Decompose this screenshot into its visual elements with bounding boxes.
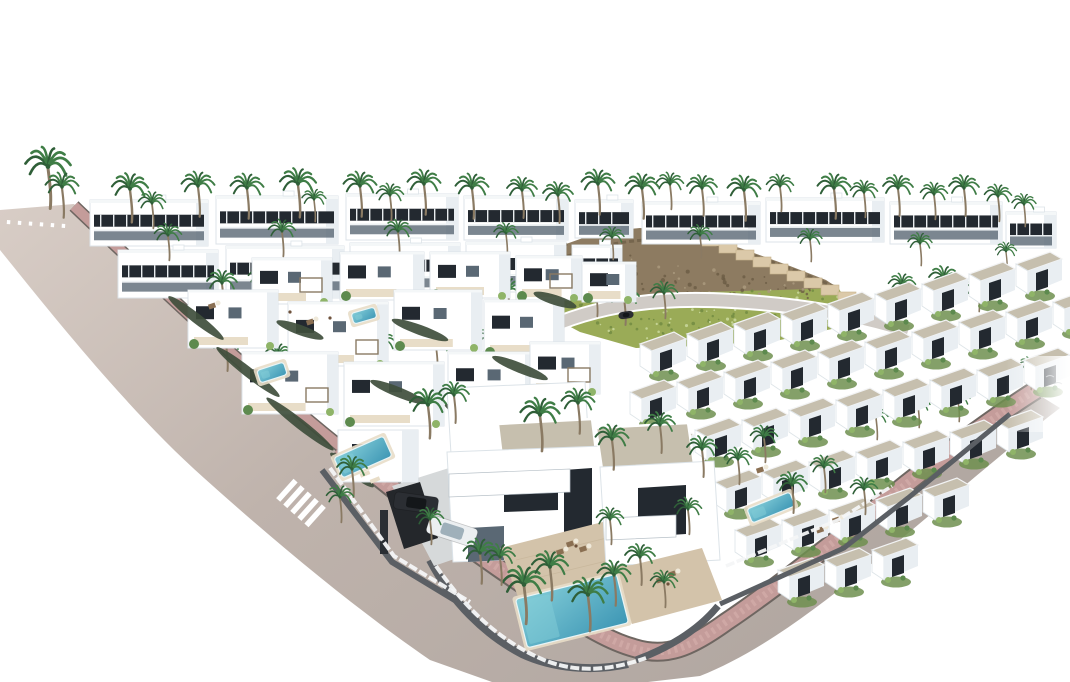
window [333, 321, 346, 332]
terrace [346, 289, 396, 297]
window-band [94, 215, 204, 227]
townhouse-unit [969, 262, 1015, 312]
garden-tree [715, 359, 720, 364]
wall-step [736, 250, 754, 260]
garden-tree [831, 379, 837, 385]
townhouse-unit [883, 378, 929, 428]
garden-tree [885, 577, 891, 583]
townhouse-unit [1016, 252, 1062, 302]
development-aerial-render [0, 0, 1070, 682]
garden-tree [1010, 449, 1016, 455]
garden-tree [243, 405, 253, 415]
garden-tree [896, 417, 902, 423]
villa-row-building [464, 191, 568, 240]
aerial-render-stage [0, 0, 1070, 682]
townhouse-unit [818, 340, 864, 390]
garden-tree [943, 407, 949, 413]
crosswalk-stripe [18, 221, 22, 225]
window-band [770, 228, 880, 237]
road-fade-right [1006, 356, 1070, 432]
window-band [770, 212, 880, 224]
wall-step [787, 271, 805, 281]
garden-tree [911, 415, 916, 420]
window [352, 380, 370, 393]
window [348, 265, 366, 278]
crosswalk-stripe [40, 222, 44, 226]
garden-tree [888, 321, 894, 327]
garden-tree [770, 445, 775, 450]
garden-tree [950, 309, 955, 314]
window [402, 307, 420, 320]
garden-tree [982, 301, 988, 307]
wall-step [804, 278, 822, 288]
garden-tree [935, 311, 941, 317]
garden-tree [889, 527, 895, 533]
garden-tree [345, 417, 355, 427]
window-band [94, 231, 204, 240]
curved-balcony [449, 469, 570, 497]
garden-tree [189, 339, 199, 349]
garden-tree [432, 420, 440, 428]
garden-tree [878, 369, 884, 375]
garden-tree [784, 389, 790, 395]
garden-tree [755, 447, 761, 453]
garden-tree [940, 357, 945, 362]
garden-tree [326, 408, 334, 416]
garden-tree [842, 537, 848, 543]
townhouse-unit [771, 350, 817, 400]
townhouse-unit [789, 398, 835, 448]
window [466, 266, 479, 277]
window-band [350, 209, 454, 221]
townhouse-unit [912, 320, 958, 370]
wall-step [770, 264, 788, 274]
window [488, 369, 501, 380]
garden-tree [1025, 447, 1030, 452]
garden-tree [963, 459, 969, 465]
garden-tree [668, 369, 673, 374]
detached-villa [582, 262, 636, 304]
window [538, 357, 556, 370]
parasol [764, 465, 769, 470]
garden-tree [849, 427, 855, 433]
parasol [676, 569, 681, 574]
townhouse-unit [865, 330, 911, 380]
garden-tree [795, 547, 801, 553]
garden-tree [997, 299, 1002, 304]
garden-tree [951, 515, 956, 520]
crosswalk-stripe [62, 224, 66, 228]
window [456, 368, 474, 381]
garden-tree [903, 319, 908, 324]
garden-tree [806, 595, 811, 600]
garden-tree [904, 525, 909, 530]
window [378, 266, 391, 277]
garden-tree [853, 585, 858, 590]
wall-step [753, 257, 771, 267]
garden-tree [752, 397, 757, 402]
garden-tree [395, 341, 405, 351]
window [229, 307, 242, 318]
garden-tree [1034, 337, 1039, 342]
townhouse-unit [724, 360, 770, 410]
garden-tree [990, 397, 996, 403]
window [590, 273, 608, 286]
garden-tree [762, 349, 767, 354]
parasol [216, 301, 221, 306]
window [606, 274, 619, 285]
window [260, 271, 278, 284]
balcony [606, 515, 676, 540]
garden-tree [856, 329, 861, 334]
garden-tree [936, 517, 942, 523]
window-band [894, 215, 998, 227]
garden-tree [700, 361, 706, 367]
garden-tree [588, 388, 596, 396]
garden-tree [624, 296, 632, 304]
window-band [220, 211, 334, 223]
terrace [350, 415, 410, 423]
window [434, 308, 447, 319]
person [574, 544, 577, 547]
window-band [1010, 236, 1052, 245]
parasol [564, 547, 569, 552]
garden-tree [837, 487, 842, 492]
garden-tree [884, 477, 889, 482]
villa-row-building [216, 191, 338, 244]
garden-tree [653, 371, 659, 377]
person [666, 582, 669, 585]
garden-tree [925, 359, 931, 365]
townhouse-unit [630, 380, 676, 430]
garden-tree [978, 457, 983, 462]
townhouse-unit [959, 310, 1005, 360]
garden-tree [747, 351, 753, 357]
garden-tree [900, 575, 905, 580]
garden-tree [809, 339, 814, 344]
garden-tree [893, 367, 898, 372]
garden-tree [1029, 291, 1035, 297]
garden-tree [737, 399, 743, 405]
window [288, 272, 301, 283]
townhouse-unit [836, 388, 882, 438]
garden-tree [802, 437, 808, 443]
window [520, 317, 533, 328]
window-band [894, 231, 998, 240]
crosswalk-stripe [29, 222, 33, 226]
person [288, 310, 291, 313]
garden-tree [916, 469, 922, 475]
garden-tree [794, 341, 800, 347]
garden-tree [838, 587, 844, 593]
garden-tree [690, 409, 696, 415]
garden-tree [931, 467, 936, 472]
garden-tree [470, 344, 478, 352]
townhouse-unit [1006, 300, 1052, 350]
garden-tree [987, 347, 992, 352]
window [546, 269, 559, 280]
garden-tree [705, 407, 710, 412]
parasol [574, 539, 579, 544]
garden-tree [266, 342, 274, 350]
garden-tree [791, 597, 797, 603]
window-band [646, 215, 756, 227]
garden-tree [958, 405, 963, 410]
crosswalk-stripe [7, 220, 11, 224]
garden-tree [799, 387, 804, 392]
townhouse-unit [922, 272, 968, 322]
garden-tree [498, 292, 506, 300]
townhouse-unit [1053, 290, 1070, 340]
garden-tree [846, 377, 851, 382]
garden-tree [570, 294, 578, 302]
window [562, 358, 575, 369]
garden-tree [763, 555, 768, 560]
garden-tree [817, 435, 822, 440]
crosswalk-stripe [51, 223, 55, 227]
window-band [579, 212, 629, 224]
garden-tree [810, 545, 815, 550]
garden-tree [864, 425, 869, 430]
window [524, 268, 542, 281]
parasol [314, 317, 319, 322]
window [438, 265, 456, 278]
window [492, 316, 510, 329]
garden-tree [341, 291, 351, 301]
villa-row-building [90, 195, 208, 246]
villa-row-building [766, 193, 884, 242]
garden-tree [583, 293, 593, 303]
parasol [587, 544, 592, 549]
garden-tree [1044, 289, 1049, 294]
villa-row-building [1006, 207, 1056, 248]
townhouse-unit [677, 370, 723, 420]
wall-step [821, 285, 839, 295]
garden-tree [972, 349, 978, 355]
garden-tree [841, 331, 847, 337]
villa-row-building [890, 197, 1002, 244]
person [328, 316, 331, 319]
villa-side-shade [402, 430, 418, 482]
garden-tree [1019, 339, 1025, 345]
window-band [468, 210, 564, 222]
garden-tree [728, 509, 734, 515]
townhouse-unit [930, 368, 976, 418]
villa-row-building [642, 197, 760, 244]
